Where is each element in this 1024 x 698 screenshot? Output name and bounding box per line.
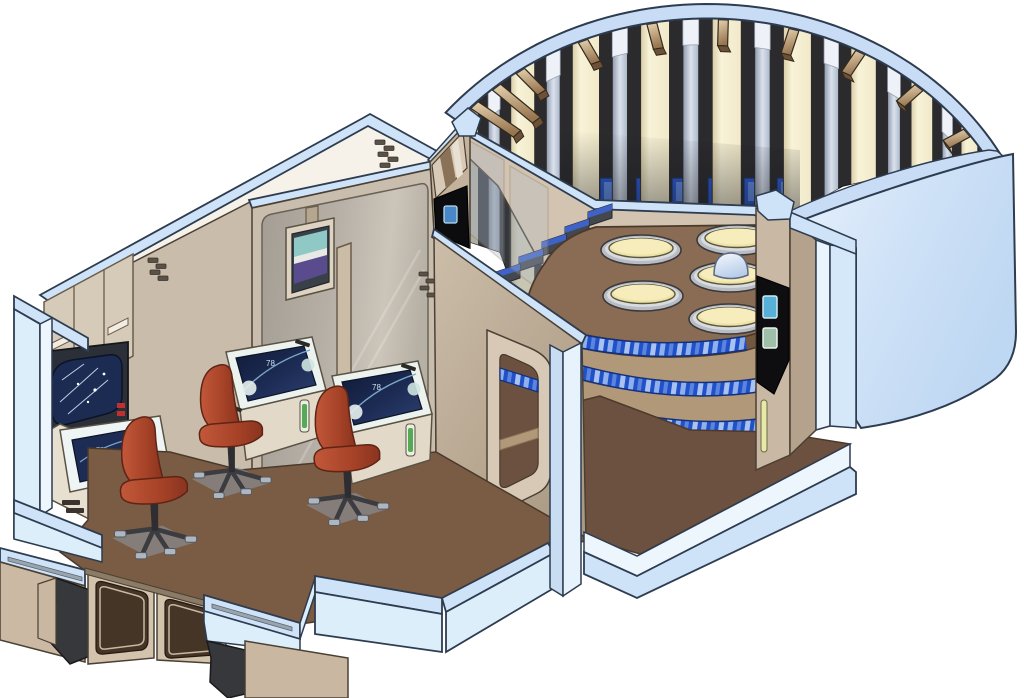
svg-text:78: 78 [266,359,275,368]
svg-text:78: 78 [372,383,381,392]
